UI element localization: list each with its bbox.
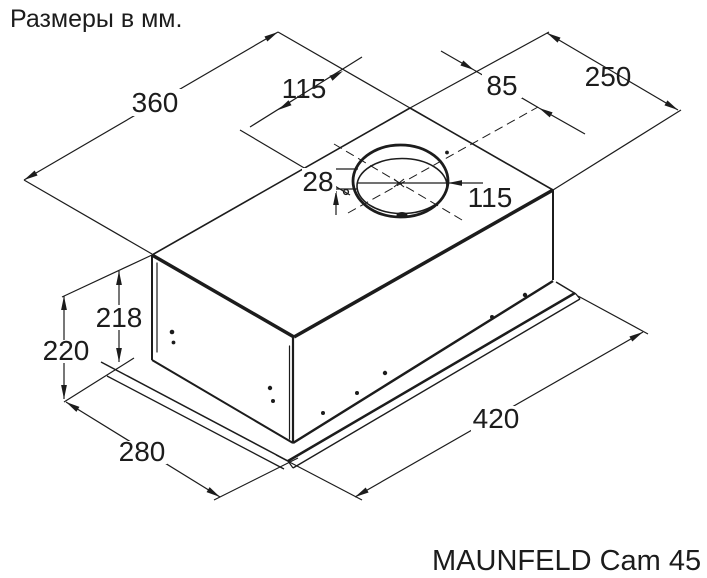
body-top-front-left-edge: [152, 255, 294, 337]
technical-drawing-page: Размеры в мм. 360 115 85 250 28 115 218 …: [0, 0, 707, 578]
front-panel-hole: [490, 315, 494, 319]
top-panel-screw-hole-right: [445, 151, 449, 155]
dimension-arrowhead: [61, 385, 67, 399]
front-panel-hole: [523, 293, 527, 297]
side-panel-hole: [170, 330, 175, 335]
dim-height-ext-top: [62, 255, 152, 297]
front-panel-hole: [271, 399, 275, 403]
dimension-arrowhead: [664, 100, 678, 110]
model-name: MAUNFELD Cam 45: [432, 545, 701, 577]
flange-right-top-edge: [556, 282, 576, 294]
dim-360-label: 360: [132, 87, 179, 118]
dimension-arrowhead: [539, 108, 553, 117]
body-top-back-right-edge: [410, 108, 553, 190]
dim-280-ext: [214, 458, 298, 500]
dimension-arrowhead: [61, 296, 67, 310]
dimension-arrowhead: [460, 61, 474, 70]
dimension-arrowhead: [333, 191, 339, 205]
dim-220-label: 220: [43, 335, 90, 366]
flange-front-top-edge: [288, 293, 575, 461]
labels: Размеры в мм. 360 115 85 250 28 115 218 …: [10, 5, 701, 577]
dimension-arrowhead: [264, 32, 278, 42]
body-top-back-left-edge: [152, 108, 410, 255]
flange-front-bottom-edge: [293, 299, 580, 468]
dimension-arrowhead: [116, 348, 122, 362]
dimension-arrowhead: [448, 180, 462, 186]
front-panel-hole: [355, 391, 359, 395]
dimension-arrowhead: [207, 487, 220, 497]
dim-85-ext-left: [410, 32, 549, 108]
hood-body: [152, 108, 553, 443]
dimension-arrowhead: [116, 271, 122, 285]
dim-250-ext-right: [553, 110, 681, 190]
front-panel-hole: [268, 386, 272, 390]
dim-360-ext-left: [24, 180, 152, 254]
dimension-arrowhead: [66, 402, 79, 412]
panel-holes: [170, 293, 528, 415]
dimension-lines: [24, 32, 681, 500]
dim-28-label: 28: [302, 166, 333, 197]
hood-dimension-diagram: Размеры в мм. 360 115 85 250 28 115 218 …: [0, 0, 707, 578]
dim-85-label: 85: [486, 70, 517, 101]
side-panel-hole: [172, 341, 176, 345]
dimension-arrowhead: [629, 332, 643, 341]
dim-280-label: 280: [119, 436, 166, 467]
dim-115-top-label: 115: [282, 73, 327, 104]
front-panel-hole: [383, 371, 387, 375]
dim-250-label: 250: [585, 61, 632, 92]
drawing-title: Размеры в мм.: [10, 5, 182, 33]
dim-420-label: 420: [473, 403, 520, 434]
dimension-arrowhead: [547, 33, 561, 43]
dim-115-diameter-label: 115: [468, 182, 513, 213]
dim-218-label: 218: [96, 302, 143, 333]
dimension-arrowhead: [24, 170, 38, 180]
dim-420-ext-right: [578, 296, 648, 334]
front-panel-hole: [321, 411, 325, 415]
dimension-arrowheads: [24, 32, 678, 497]
top-panel-slot: [397, 212, 408, 218]
dimension-arrowhead: [355, 488, 369, 497]
